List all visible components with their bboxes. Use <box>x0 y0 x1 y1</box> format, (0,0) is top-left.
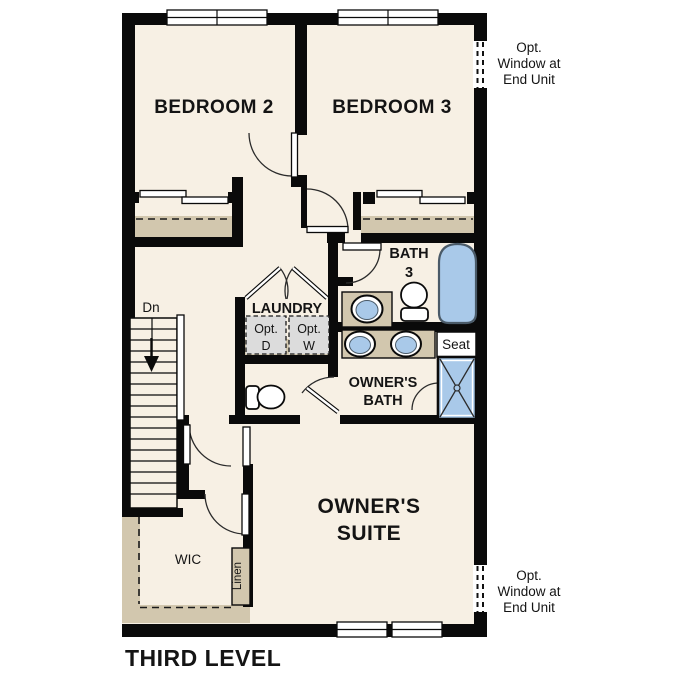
opt-window-bottom-line3: End Unit <box>503 600 555 615</box>
bedroom3-window <box>338 10 438 25</box>
linen-label: Linen <box>232 562 244 590</box>
floor-plan-page: BEDROOM 2 BEDROOM 3 BATH 3 LAUNDRY Opt. … <box>0 0 687 687</box>
owners-suite-line2: SUITE <box>337 522 401 545</box>
owners-bath-vanity <box>342 330 435 358</box>
opt-window-bottom-line1: Opt. <box>516 568 542 583</box>
stairs <box>130 315 184 508</box>
plan-title: THIRD LEVEL <box>125 645 281 671</box>
stair-railing <box>177 315 184 420</box>
opt-washer-line2: W <box>303 339 315 353</box>
optional-window-top <box>473 41 488 88</box>
opt-window-top-line1: Opt. <box>516 40 542 55</box>
owners-bath-line2: BATH <box>363 393 402 409</box>
owners-suite-window-left <box>337 622 387 637</box>
laundry-label: LAUNDRY <box>252 301 323 317</box>
stairs-dn-label: Dn <box>142 300 159 315</box>
water-closet-toilet <box>246 386 285 410</box>
bath3-label-line2: 3 <box>405 265 413 281</box>
floor-plan-drawing: BEDROOM 2 BEDROOM 3 BATH 3 LAUNDRY Opt. … <box>0 0 687 687</box>
owners-suite-line1: OWNER'S <box>318 495 421 518</box>
seat-label: Seat <box>442 337 470 352</box>
optional-window-bottom <box>473 565 488 612</box>
opt-dryer-line2: D <box>261 339 270 353</box>
bedroom2-window <box>167 10 267 25</box>
bedroom2-label: BEDROOM 2 <box>154 97 274 118</box>
opt-washer-line1: Opt. <box>297 322 321 336</box>
opt-window-top-line2: Window at <box>497 56 560 71</box>
owners-bath-line1: OWNER'S <box>349 375 418 391</box>
bedroom3-label: BEDROOM 3 <box>332 97 452 118</box>
shower <box>438 357 476 419</box>
opt-window-top-line3: End Unit <box>503 72 555 87</box>
bath3-label-line1: BATH <box>389 246 428 262</box>
owners-suite-window-right <box>392 622 442 637</box>
bath3-vanity <box>342 292 392 327</box>
wic-label: WIC <box>175 552 201 567</box>
bath3-toilet <box>401 283 428 322</box>
opt-window-bottom-line2: Window at <box>497 584 560 599</box>
bathtub <box>439 244 476 323</box>
opt-dryer-line1: Opt. <box>254 322 278 336</box>
